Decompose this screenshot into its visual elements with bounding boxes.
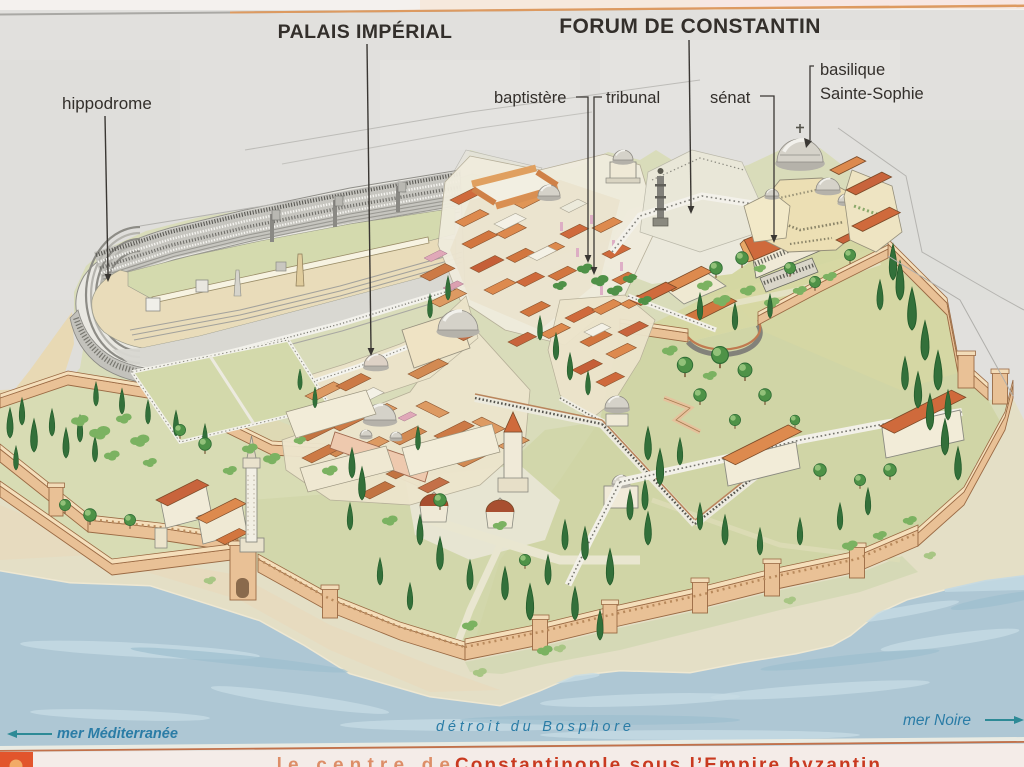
svg-text:Sainte-Sophie: Sainte-Sophie (820, 85, 924, 103)
svg-text:PALAIS IMPÉRIAL: PALAIS IMPÉRIAL (278, 20, 453, 43)
svg-text:Constantinople sous l’Empire b: Constantinople sous l’Empire byzantin (455, 755, 880, 767)
svg-text:hippodrome: hippodrome (62, 94, 152, 113)
svg-text:tribunal: tribunal (606, 89, 660, 107)
svg-text:baptistère: baptistère (494, 89, 566, 107)
svg-text:mer Méditerranée: mer Méditerranée (57, 726, 178, 742)
svg-text:détroit du Bosphore: détroit du Bosphore (436, 719, 635, 735)
svg-text:mer Noire: mer Noire (903, 712, 971, 729)
svg-text:sénat: sénat (710, 89, 751, 107)
svg-text:FORUM DE CONSTANTIN: FORUM DE CONSTANTIN (559, 15, 821, 38)
svg-text:basilique: basilique (820, 61, 885, 79)
